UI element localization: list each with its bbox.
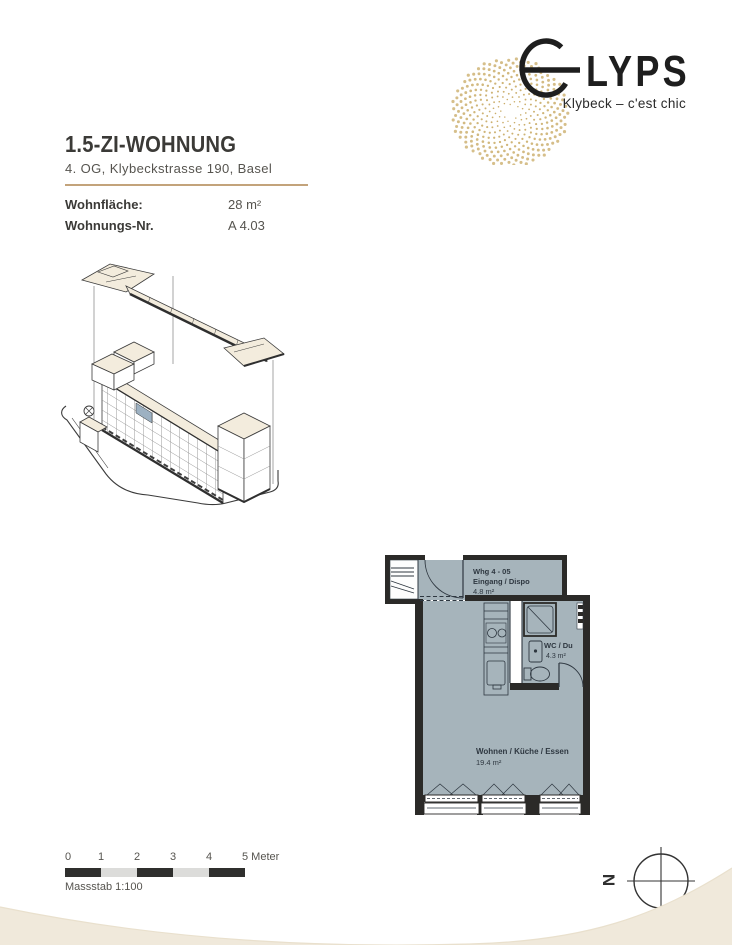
floor-plan: Whg 4 - 05 Eingang / Dispo 4.8 m² WC / D… xyxy=(383,551,613,817)
apartment-number-label: Wohnungs-Nr. xyxy=(65,218,228,233)
room-label-unit: Whg 4 - 05 xyxy=(473,567,511,576)
room-area-bath: 4.3 m² xyxy=(546,653,567,660)
fact-row-area: Wohnfläche: 28 m² xyxy=(65,194,345,215)
logo-dot-spiral-icon xyxy=(451,57,569,165)
room-label-bath: WC / Du xyxy=(544,641,573,650)
balcony-railings xyxy=(424,803,581,814)
building-main-bar xyxy=(102,374,232,503)
building-axonometry xyxy=(58,256,293,511)
roof-strip xyxy=(82,264,284,366)
logo-wordmark: LYPS xyxy=(586,47,690,96)
room-label-entrance: Eingang / Dispo xyxy=(473,577,530,586)
apartment-facts: Wohnfläche: 28 m² Wohnungs-Nr. A 4.03 xyxy=(65,194,345,236)
decorative-swoosh xyxy=(0,845,732,945)
area-value: 28 m² xyxy=(228,197,261,212)
duct-shaft xyxy=(510,601,522,683)
room-area-living: 19.4 m² xyxy=(476,758,502,767)
apartment-number-value: A 4.03 xyxy=(228,218,265,233)
building-left-towers xyxy=(92,342,154,390)
address-subtitle: 4. OG, Klybeckstrasse 190, Basel xyxy=(65,161,272,176)
wall-niche xyxy=(577,603,583,629)
logo-tagline: Klybeck – c'est chic xyxy=(563,96,686,111)
fact-row-number: Wohnungs-Nr. A 4.03 xyxy=(65,215,345,236)
area-label: Wohnfläche: xyxy=(65,197,228,212)
logo-e-icon xyxy=(522,41,580,95)
room-area-entrance: 4.8 m² xyxy=(473,587,495,596)
wardrobe-icon xyxy=(390,560,418,599)
brand-logo: LYPS Klybeck – c'est chic xyxy=(440,15,722,165)
building-right-tower xyxy=(218,413,270,502)
room-label-living: Wohnen / Küche / Essen xyxy=(476,747,569,756)
page-title: 1.5-ZI-WOHNUNG xyxy=(65,131,236,158)
gold-separator-rule xyxy=(65,184,308,186)
